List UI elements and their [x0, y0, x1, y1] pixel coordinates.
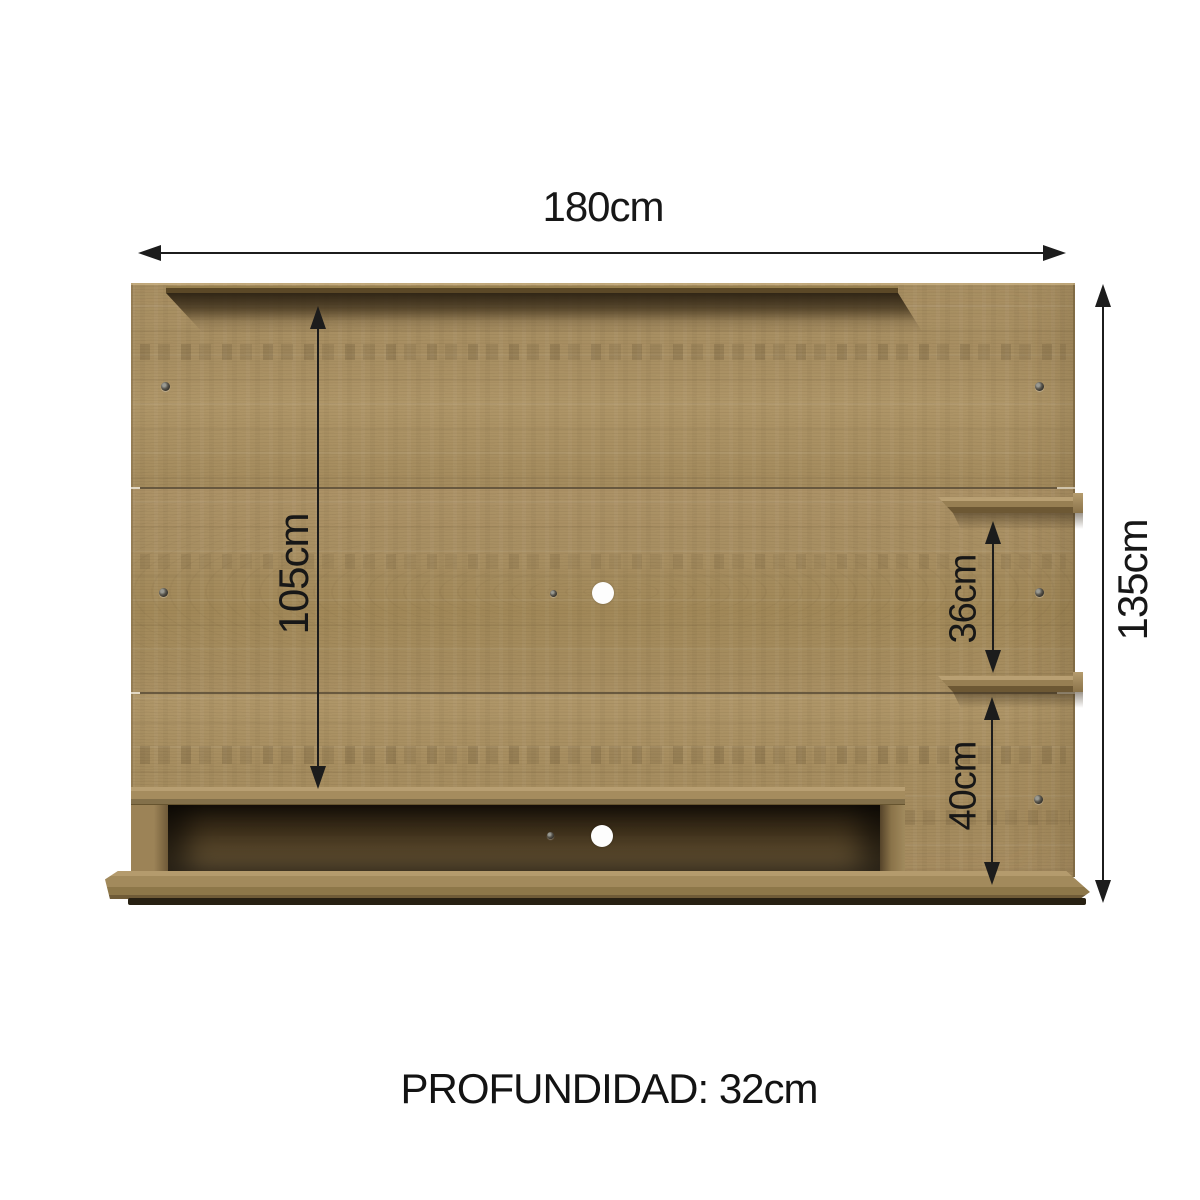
tv-area-height-label: 105cm — [270, 513, 318, 634]
base-board — [105, 871, 1090, 899]
arrowhead-up-icon — [1095, 284, 1111, 307]
cable-hole-compartment — [591, 825, 613, 847]
screw — [550, 590, 557, 597]
top-shelf-shadow — [166, 293, 923, 333]
arrowhead-down-icon — [310, 766, 326, 789]
right-shelf-upper-shadow — [953, 513, 1083, 529]
right-shelf-lower-endcap — [1073, 672, 1083, 692]
arrowhead-down-icon — [1095, 880, 1111, 903]
height-dimension-line — [1102, 298, 1104, 890]
bottom-section-line — [991, 708, 993, 874]
arrowhead-up-icon — [984, 697, 1000, 720]
arrowhead-right-icon — [1043, 245, 1066, 261]
right-shelf-lower — [938, 676, 1083, 692]
screw — [1035, 588, 1044, 597]
width-dimension-label: 180cm — [542, 183, 663, 231]
shelf-gap-line — [992, 532, 994, 662]
wood-grain-band — [140, 746, 1066, 764]
arrowhead-left-icon — [138, 245, 161, 261]
screw — [161, 382, 170, 391]
media-box-left-wall — [131, 805, 168, 873]
right-shelf-upper-endcap — [1073, 493, 1083, 513]
wood-grain-band — [140, 344, 1066, 360]
right-shelf-upper — [938, 497, 1083, 513]
arrowhead-down-icon — [984, 862, 1000, 885]
screw — [1035, 382, 1044, 391]
diagram-canvas: 180cm 135cm 105cm 36cm 40cm PROFUNDIDAD:… — [0, 0, 1200, 1200]
cable-hole-center — [592, 582, 614, 604]
screw — [1034, 795, 1043, 804]
media-shelf-ledge — [131, 787, 905, 807]
shelf-gap-label: 36cm — [943, 555, 986, 644]
arrowhead-up-icon — [985, 521, 1001, 544]
right-shelf-lower-shadow — [953, 692, 1083, 708]
arrowhead-down-icon — [985, 650, 1001, 673]
screw — [547, 832, 554, 839]
tv-area-height-line — [317, 318, 319, 778]
top-shelf — [166, 286, 898, 293]
media-box-interior — [168, 805, 880, 871]
bottom-section-label: 40cm — [943, 742, 986, 831]
base-bottom-edge — [128, 898, 1086, 905]
plank-seam-upper — [131, 487, 1075, 489]
depth-label: PROFUNDIDAD: 32cm — [400, 1065, 817, 1113]
screw — [159, 588, 168, 597]
plank-seam-lower — [131, 692, 1075, 694]
arrowhead-up-icon — [310, 306, 326, 329]
height-dimension-label: 135cm — [1109, 519, 1157, 640]
media-box-right-wall — [880, 805, 905, 873]
wood-grain-band — [905, 810, 1070, 825]
width-dimension-line — [156, 252, 1046, 254]
